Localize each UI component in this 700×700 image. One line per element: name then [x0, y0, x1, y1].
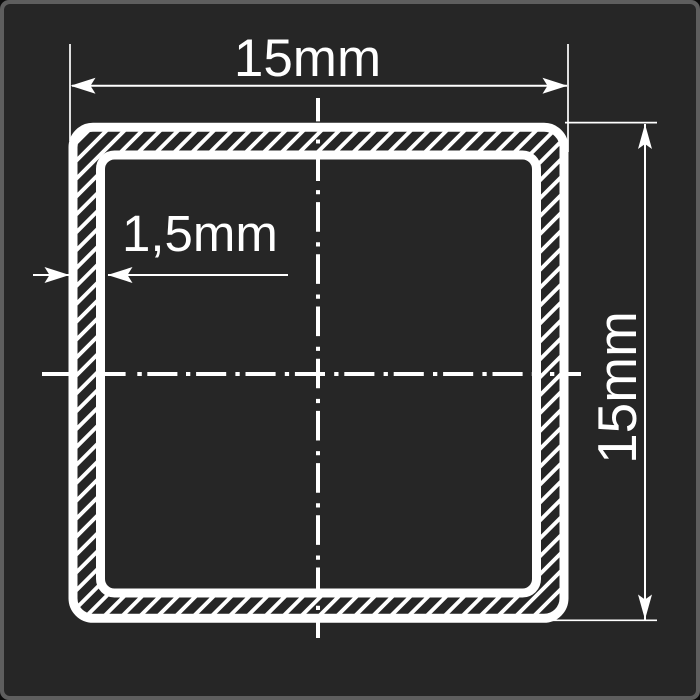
svg-text:15mm: 15mm	[586, 311, 648, 464]
svg-text:15mm: 15mm	[234, 29, 381, 88]
svg-text:1,5mm: 1,5mm	[122, 205, 278, 262]
